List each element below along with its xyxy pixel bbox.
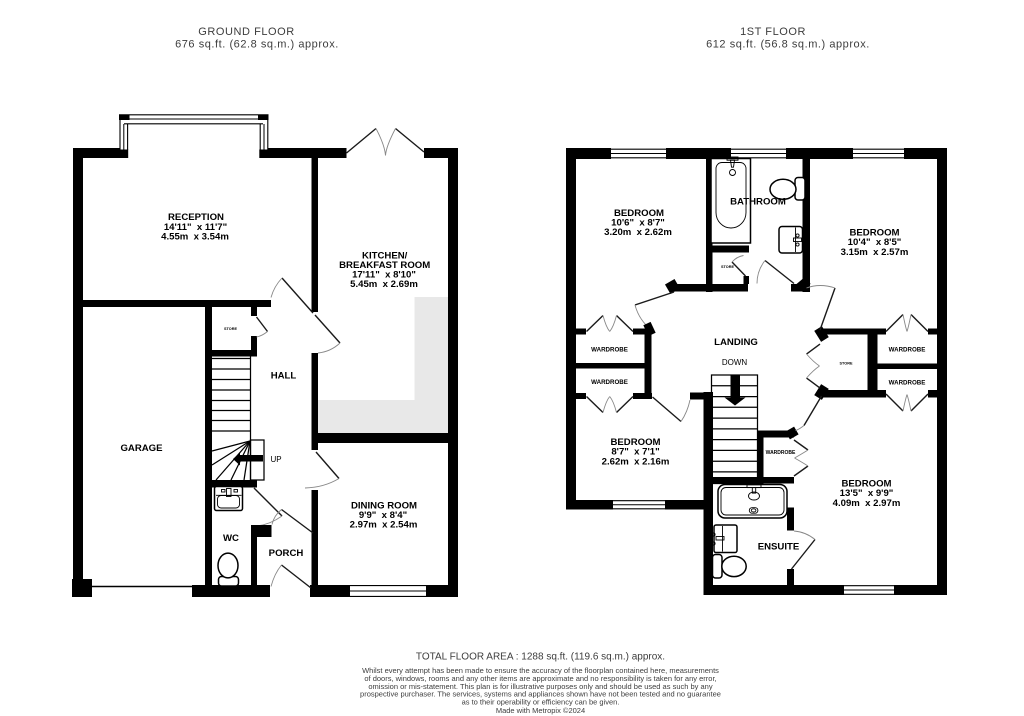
svg-text:BATHROOM: BATHROOM [730,197,786,208]
svg-text:WARDROBE: WARDROBE [889,347,926,354]
svg-text:612 sq.ft. (56.8 sq.m.) approx: 612 sq.ft. (56.8 sq.m.) approx. [706,39,870,51]
svg-text:676 sq.ft. (62.8 sq.m.) approx: 676 sq.ft. (62.8 sq.m.) approx. [175,39,339,51]
svg-text:2.62m x 2.16m: 2.62m x 2.16m [602,456,670,467]
svg-text:1ST FLOOR: 1ST FLOOR [740,26,806,38]
svg-text:PORCH: PORCH [269,548,304,559]
svg-text:STORE: STORE [721,265,734,269]
svg-text:HALL: HALL [271,371,297,382]
svg-text:GROUND FLOOR: GROUND FLOOR [198,26,294,38]
svg-text:3.20m x 2.62m: 3.20m x 2.62m [604,227,672,238]
svg-text:WC: WC [223,533,239,544]
svg-text:STORE: STORE [224,327,237,331]
svg-text:WARDROBE: WARDROBE [591,379,628,386]
svg-text:DOWN: DOWN [722,358,748,367]
svg-text:UP: UP [270,455,281,464]
svg-text:GARAGE: GARAGE [120,443,163,454]
svg-text:3.15m x 2.57m: 3.15m x 2.57m [841,247,909,258]
svg-text:2.97m x 2.54m: 2.97m x 2.54m [350,520,418,531]
svg-text:TOTAL FLOOR AREA : 1288 sq.ft.: TOTAL FLOOR AREA : 1288 sq.ft. (119.6 sq… [416,652,665,663]
svg-text:WARDROBE: WARDROBE [889,380,926,387]
svg-text:WARDROBE: WARDROBE [766,450,796,456]
svg-text:WARDROBE: WARDROBE [591,347,628,354]
svg-text:5.45m x 2.69m: 5.45m x 2.69m [350,279,418,290]
svg-text:Made with Metropix ©2024: Made with Metropix ©2024 [496,706,585,715]
svg-text:4.55m x 3.54m: 4.55m x 3.54m [161,232,229,243]
svg-text:ENSUITE: ENSUITE [758,542,800,553]
svg-text:4.09m x 2.97m: 4.09m x 2.97m [833,498,901,509]
svg-text:STORE: STORE [839,362,852,366]
svg-text:LANDING: LANDING [714,337,758,348]
